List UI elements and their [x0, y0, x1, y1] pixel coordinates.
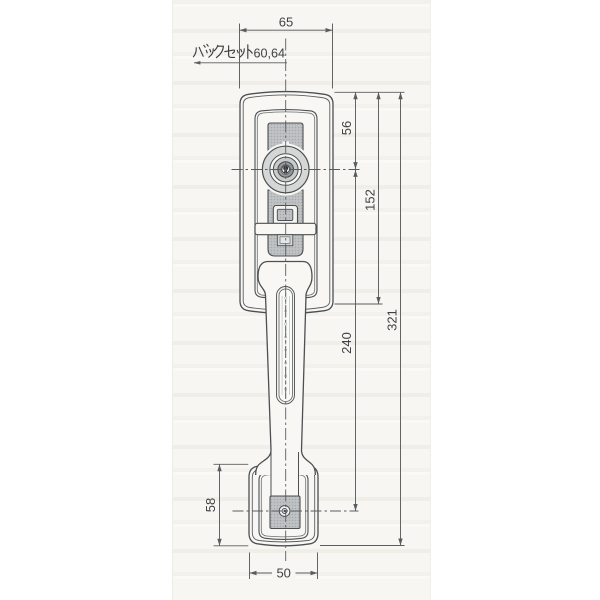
grip-ornament — [277, 287, 295, 405]
arrowhead — [311, 571, 318, 575]
kana-se — [225, 46, 235, 58]
arrowhead — [353, 170, 357, 177]
backset-kana-text — [193, 44, 252, 58]
thumbpiece-inner — [277, 209, 293, 220]
dim-56-240: 56 240 — [339, 92, 358, 511]
dim-label-152: 152 — [362, 189, 377, 211]
arrowhead — [353, 162, 357, 169]
kana-small-tsu — [237, 49, 244, 57]
arrowhead — [240, 28, 247, 32]
arrowhead — [398, 539, 402, 546]
arrowhead — [376, 92, 380, 99]
dim-50: 50 — [250, 553, 318, 581]
dim-label-240: 240 — [339, 332, 354, 354]
arrowhead — [217, 539, 221, 546]
dim-backset: 60,64 — [193, 44, 287, 64]
thumbpiece-shaft-inner — [280, 237, 290, 244]
arrowhead — [376, 297, 380, 304]
arrowhead — [326, 28, 333, 32]
kana-small-tsu — [206, 49, 213, 57]
kana-ku — [214, 45, 223, 57]
arrowhead — [398, 92, 402, 99]
dim-label-321: 321 — [384, 309, 399, 331]
arrowhead — [250, 571, 257, 575]
arrowhead — [194, 61, 201, 65]
dim-label-50: 50 — [276, 566, 290, 581]
kana-to — [248, 45, 252, 59]
dim-label-backset-value: 60,64 — [254, 47, 286, 61]
page: { "dimensions": { "top_width": "65", "ba… — [0, 0, 600, 600]
dim-label-58: 58 — [203, 498, 218, 512]
dim-label-56: 56 — [339, 121, 354, 135]
dim-58: 58 — [203, 464, 248, 546]
arrowhead — [353, 504, 357, 511]
technical-drawing: 65 60,64 56 240 — [0, 0, 600, 600]
arrowhead — [217, 464, 221, 471]
dim-label-65: 65 — [279, 15, 293, 30]
arrowhead — [353, 92, 357, 99]
bottom-mount — [270, 496, 300, 529]
